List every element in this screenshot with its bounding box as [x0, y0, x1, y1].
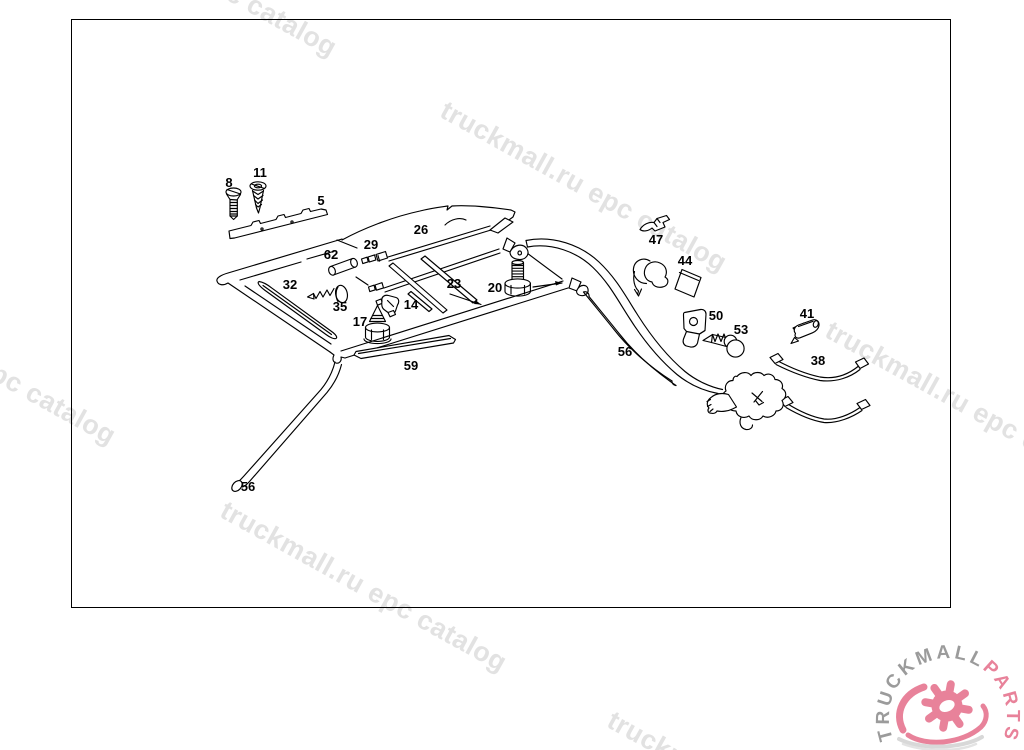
logo-swoosh-left	[900, 687, 924, 730]
part-label-35: 35	[333, 299, 347, 314]
part-label-62: 62	[324, 247, 338, 262]
part-label-59: 59	[404, 358, 418, 373]
part-label-29: 29	[364, 237, 378, 252]
part-label-47: 47	[649, 232, 663, 247]
part-label-11: 11	[253, 165, 267, 180]
part-11-screw	[250, 182, 266, 213]
part-label-8: 8	[225, 175, 232, 190]
part-label-23: 23	[447, 276, 461, 291]
part-50-bracket	[683, 309, 706, 347]
part-label-56-right: 56	[618, 344, 632, 359]
part-label-20: 20	[488, 280, 502, 295]
part-8-screw	[226, 188, 241, 220]
part-label-56-left: 56	[241, 479, 255, 494]
part-14-bracket	[376, 295, 399, 317]
drive-motor-assembly	[707, 373, 786, 430]
part-label-44: 44	[678, 253, 693, 268]
part-label-50: 50	[709, 308, 723, 323]
logo-text-pink: PARTS	[979, 657, 1023, 746]
part-label-32: 32	[283, 277, 297, 292]
part-38-bow-lower	[780, 397, 870, 423]
part-20-stud-bolt	[505, 261, 530, 297]
part-5-rail	[229, 209, 328, 239]
part-label-53: 53	[734, 322, 748, 337]
part-29-cable-fitting	[362, 252, 388, 264]
part-56-drain-tube-left	[230, 362, 342, 493]
part-47-clip	[640, 216, 670, 232]
part-label-5: 5	[317, 193, 324, 208]
brand-logo: TRUCKMALLPARTS	[873, 642, 1023, 750]
part-41-clamp	[791, 320, 819, 344]
part-label-17: 17	[353, 314, 367, 329]
catalog-page: truckmall.ru epc catalog truckmall.ru ep…	[0, 0, 1024, 750]
logo-text-gray: TRUCKMALL	[873, 642, 990, 744]
exploded-diagram-sunroof: 8 11 5 29 26 62 32 35 17 14 23 20 47 44 …	[0, 0, 1024, 750]
part-label-41: 41	[800, 306, 814, 321]
gear-icon	[925, 684, 968, 727]
part-53-screw-grommet	[703, 334, 744, 357]
part-label-26: 26	[414, 222, 428, 237]
part-label-14: 14	[404, 297, 419, 312]
part-label-38: 38	[811, 353, 825, 368]
